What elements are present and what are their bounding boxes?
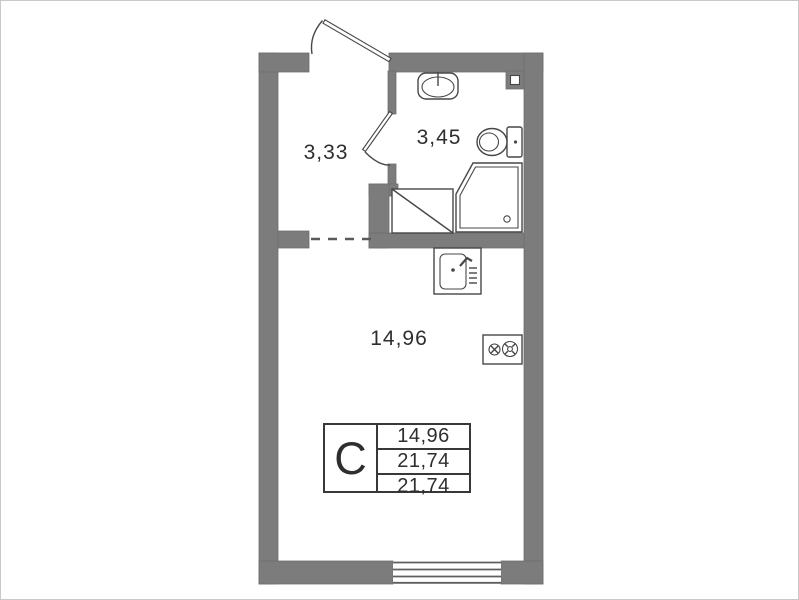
window-body [393,561,501,584]
shower-icon [456,163,522,232]
vent-shaft-opening [511,76,520,85]
bathroom-sink-icon [418,72,458,99]
stove-icon [483,335,522,364]
floor-plan-canvas: 3,33 3,45 14,96 С 14,96 21,74 21,74 [0,0,799,600]
kitchen-sink-drain [451,268,455,272]
wall-bottom-left-segment [259,561,393,584]
floor-plan-drawing [1,1,799,600]
vent-shaft-icon [506,71,524,89]
kitchen-sink-icon [434,248,481,294]
toilet-button [514,140,517,143]
area-values-column: 14,96 21,74 21,74 [378,425,469,491]
wall-bathroom-bottom [369,233,524,248]
entrance-door-icon [311,20,391,62]
area-value-row: 14,96 [378,425,469,450]
washing-machine-icon [392,189,453,233]
area-value-row: 21,74 [378,475,469,498]
unit-type-cell: С [325,425,378,491]
room-label-bathroom: 3,45 [417,126,462,150]
door-swing-arc [365,152,390,165]
room-label-hallway: 3,33 [304,141,349,165]
wall-bathroom-partition-stub [388,164,396,186]
area-value-row: 21,74 [378,450,469,475]
wall-right [524,53,543,584]
door-leaf [323,20,391,62]
wall-hallway-stub [278,231,309,248]
apartment-info-table: С 14,96 21,74 21,74 [323,423,471,493]
toilet-bowl-inner [480,133,499,151]
door-leaf [363,112,393,152]
wall-bottom-right-segment [501,561,543,584]
wall-top-right-segment [389,53,543,72]
room-label-living: 14,96 [370,327,428,351]
wall-top-left-segment [259,53,309,72]
window-icon [393,561,501,584]
bathroom-door-icon [363,112,393,166]
toilet-icon [477,127,522,157]
shower-drain [504,216,510,222]
wall-bathroom-partition-upper [388,71,396,114]
wall-left [259,53,278,584]
door-swing-arc [311,21,322,55]
